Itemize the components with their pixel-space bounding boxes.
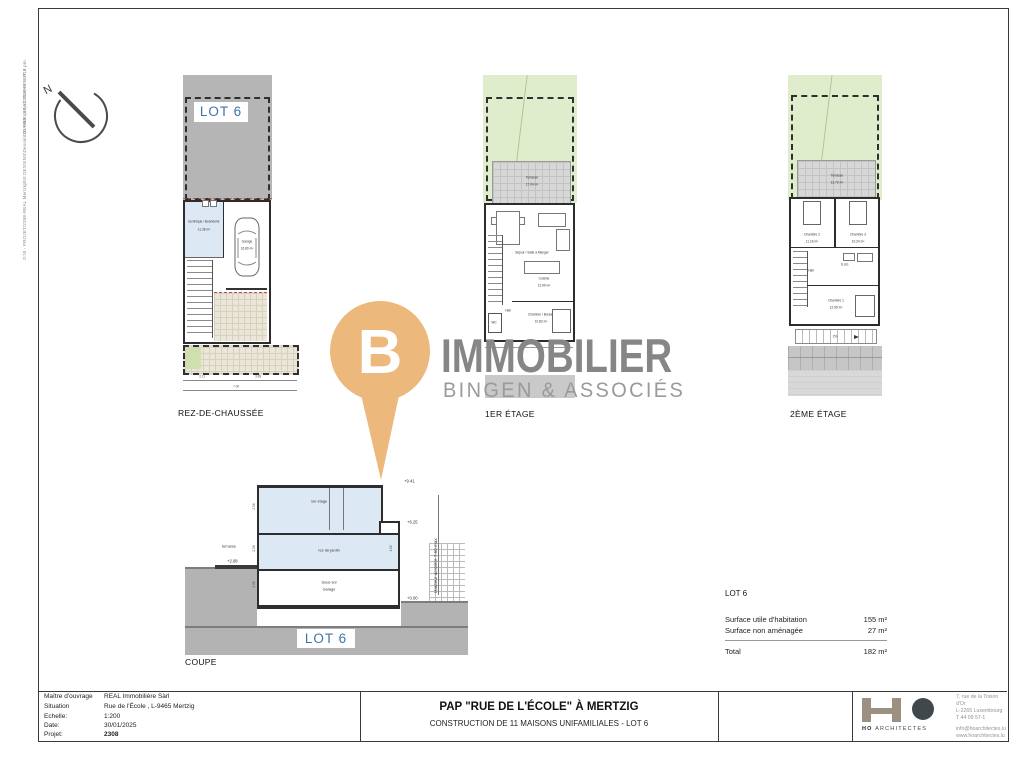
project-title: PAP "RUE DE L'ÉCOLE" À MERTZIG — [360, 701, 718, 713]
info-value: Rue de l'École , L-9465 Mertzig — [104, 703, 194, 710]
architect-name-ho: HO — [862, 726, 873, 732]
coupe-terrasse-label: terrasse — [213, 545, 246, 550]
e2-chambre1-area: 12.95 m² — [819, 306, 854, 310]
coupe-label-rez-de-jardin: rez-de-jardin — [307, 549, 351, 554]
e2-parking — [788, 346, 882, 370]
chair — [519, 217, 525, 225]
red-boundary-line — [183, 198, 272, 199]
e2-terrasse: Terrasse 13.72 m² — [797, 160, 876, 200]
e2-apron — [788, 370, 882, 396]
coupe-label-garage: Garage — [307, 588, 351, 593]
e2-terrasse-area: 13.72 m² — [820, 181, 855, 185]
titleblock-divider-1 — [360, 691, 361, 741]
coupe-partition — [343, 488, 344, 530]
e1-terrasse-area: 17.64 m² — [515, 183, 550, 187]
e2-chambre3-label: Chambre 3 — [841, 233, 876, 237]
coupe-label-1er-etage: 1er étage — [297, 500, 341, 505]
rdc-inner-terrace — [214, 292, 267, 341]
terrain-right — [401, 601, 468, 629]
lot6-label-plan: LOT 6 — [194, 102, 248, 122]
e2-chambre2-label: Chambre 2 — [795, 233, 830, 237]
watermark-name: IMMOBILIER — [441, 328, 672, 383]
e2-bathtub — [857, 253, 873, 262]
room-garage-area: 16.80 m² — [230, 247, 265, 251]
e2-house-outline: Chambre 2 11.16 m² Chambre 3 10.24 m² S.… — [789, 197, 880, 326]
plan-rez-de-chaussee: LOT 6 technique / Buanderie 11.38 m² Gar… — [178, 75, 300, 420]
svg-text:B: B — [358, 318, 403, 387]
garage-door-line — [226, 288, 267, 290]
dim-line-1 — [183, 380, 297, 381]
e1-cuisine-area: 12.99 m² — [529, 284, 559, 288]
e2-sdb-label: S.d.b. — [830, 263, 860, 267]
e2-ramp: 2% — [795, 329, 877, 344]
e2-chambre2-area: 11.16 m² — [795, 240, 830, 244]
surface-total-value: 182 m² — [864, 647, 887, 656]
info-label: Maître d'ouvrage — [44, 693, 93, 700]
margin-file-path: O:\0 - PROJET\2308-REAL Mertzig\03 DESSI… — [22, 142, 27, 260]
addr-line: info@hoarchitectes.lu — [956, 726, 1008, 733]
north-arrow: N — [42, 78, 114, 150]
e1-stairs — [488, 235, 503, 305]
dim-line-2 — [183, 390, 297, 391]
coupe-dim: 2.88 — [252, 581, 256, 587]
room-garage: Garage 16.80 m² — [226, 202, 267, 290]
sofa — [538, 213, 566, 227]
ho-logo-icon — [862, 698, 937, 722]
surface-divider — [725, 640, 887, 641]
surface-total-label: Total — [725, 647, 741, 656]
e2-bed-ch2 — [803, 201, 821, 225]
level-terrasse: +2.98 — [227, 559, 238, 563]
north-arrow-icon — [42, 78, 114, 150]
armchair — [556, 229, 570, 251]
addr-line: 7, rue de la Toison d'Or — [956, 694, 1008, 708]
room-technique-area: 11.38 m² — [187, 228, 222, 232]
coupe-partition — [329, 488, 330, 530]
architect-address: 7, rue de la Toison d'Or L-2265 Luxembou… — [956, 694, 1008, 740]
surface-row1-label: Surface utile d'habitation — [725, 615, 807, 624]
ramp-slope-label: 2% — [828, 335, 843, 339]
lot6-label-coupe: LOT 6 — [297, 629, 355, 648]
e2-stairs — [793, 251, 808, 307]
caption-2eme-etage: 2ÈME ÉTAGE — [790, 409, 847, 419]
addr-line: T 44 09 57-1 — [956, 715, 1008, 722]
e1-sejour-label: Séjour / Salle à Manger — [513, 251, 551, 255]
coupe-dim: 1.00 — [389, 545, 393, 551]
fixture-box — [210, 200, 217, 207]
ramp-arrow-icon — [854, 335, 859, 339]
e1-terrasse: Terrasse 17.64 m² — [492, 161, 571, 204]
titleblock-divider-3 — [852, 691, 853, 741]
rdc-stairs — [187, 260, 213, 338]
coupe-dim: 2.56 — [252, 503, 256, 509]
info-label: Situation — [44, 703, 69, 710]
e2-chambre3-area: 10.24 m² — [841, 240, 876, 244]
coupe-section: 1er étage rez-de-jardin Sous-sol Garage … — [185, 473, 475, 673]
info-value: 1:200 — [104, 713, 120, 720]
plan-2eme-etage: Terrasse 13.72 m² Chambre 2 11.16 m² Cha… — [788, 75, 883, 420]
kitchen-island — [524, 261, 560, 274]
e2-sink — [843, 253, 855, 261]
map-pin-icon: B — [327, 300, 433, 482]
architect-name-rest: ARCHITECTES — [875, 726, 927, 732]
info-value: 30/01/2025 — [104, 722, 137, 729]
e2-partition-v — [834, 199, 836, 247]
coupe-floor-1er-etage: 1er étage — [257, 485, 383, 535]
surface-row2-value: 27 m² — [868, 626, 887, 635]
architect-logo: HO ARCHITECTES — [862, 698, 946, 738]
titleblock-divider-2 — [718, 691, 719, 741]
surface-table-title: LOT 6 — [725, 589, 747, 598]
coupe-terrace-slab — [215, 565, 257, 569]
coupe-floor-sous-sol: Sous-sol Garage — [257, 569, 400, 609]
e2-chambre1-label: Chambre 1 — [819, 299, 854, 303]
e2-terrasse-label: Terrasse — [820, 174, 855, 178]
info-value: REAL Immobilière Sàrl — [104, 693, 170, 700]
height-note: Hauteur acrotère 7.50 max — [433, 503, 438, 593]
caption-coupe: COUPE — [185, 657, 217, 667]
level-mid: +6.25 — [407, 520, 418, 524]
e2-hall-label: Hall — [796, 269, 826, 273]
addr-line: L-2265 Luxembourg — [956, 708, 1008, 715]
watermark-tagline: BINGEN & ASSOCIÉS — [443, 379, 685, 403]
coupe-label-sous-sol: Sous-sol — [307, 581, 351, 586]
rdc-house-outline: technique / Buanderie 11.38 m² Garage 16… — [183, 200, 271, 344]
surface-row1-value: 155 m² — [864, 615, 887, 624]
surface-row2-label: Surface non aménagée — [725, 626, 803, 635]
coupe-floor-rez-de-jardin: rez-de-jardin — [257, 533, 400, 571]
e2-partition-h2 — [807, 285, 878, 286]
fixture-box — [202, 200, 209, 207]
titleblock-top-line — [38, 691, 1007, 692]
e2-bed-ch3 — [849, 201, 867, 225]
project-subtitle: CONSTRUCTION DE 11 MAISONS UNIFAMILIALES… — [360, 719, 718, 728]
info-label: Projet: — [44, 731, 63, 738]
addr-line: www.hoarchitectes.lu — [956, 733, 1008, 740]
caption-rez-de-chaussee: REZ-DE-CHAUSSÉE — [178, 408, 264, 418]
info-label: Echelle: — [44, 713, 67, 720]
e1-cuisine-label: Cuisine — [529, 277, 559, 281]
dim-total: 7.00 — [233, 385, 239, 389]
height-dim-line — [438, 495, 439, 595]
e2-parking-line — [788, 357, 882, 358]
room-garage-label: Garage — [230, 240, 265, 244]
chair — [491, 217, 497, 225]
dim-right: 3.89 — [255, 375, 261, 379]
info-label: Date: — [44, 722, 60, 729]
info-value-projet: 2308 — [104, 731, 118, 738]
e2-bed-ch1 — [855, 295, 875, 317]
e1-terrasse-label: Terrasse — [515, 176, 550, 180]
room-technique-buanderie: technique / Buanderie 11.38 m² — [185, 202, 224, 258]
rdc-green-patch — [186, 348, 201, 369]
level-zero: +0.00 — [407, 596, 418, 600]
e2-partition-h — [791, 247, 878, 248]
room-technique-label: technique / Buanderie — [187, 220, 222, 224]
dim-left: 3.11 — [199, 375, 205, 379]
architect-name: HO ARCHITECTES — [862, 726, 927, 732]
coupe-dim: 2.58 — [252, 545, 256, 551]
drawing-sheet: { "sheet": { "path_label_upper": "03 PRE… — [0, 0, 1024, 768]
